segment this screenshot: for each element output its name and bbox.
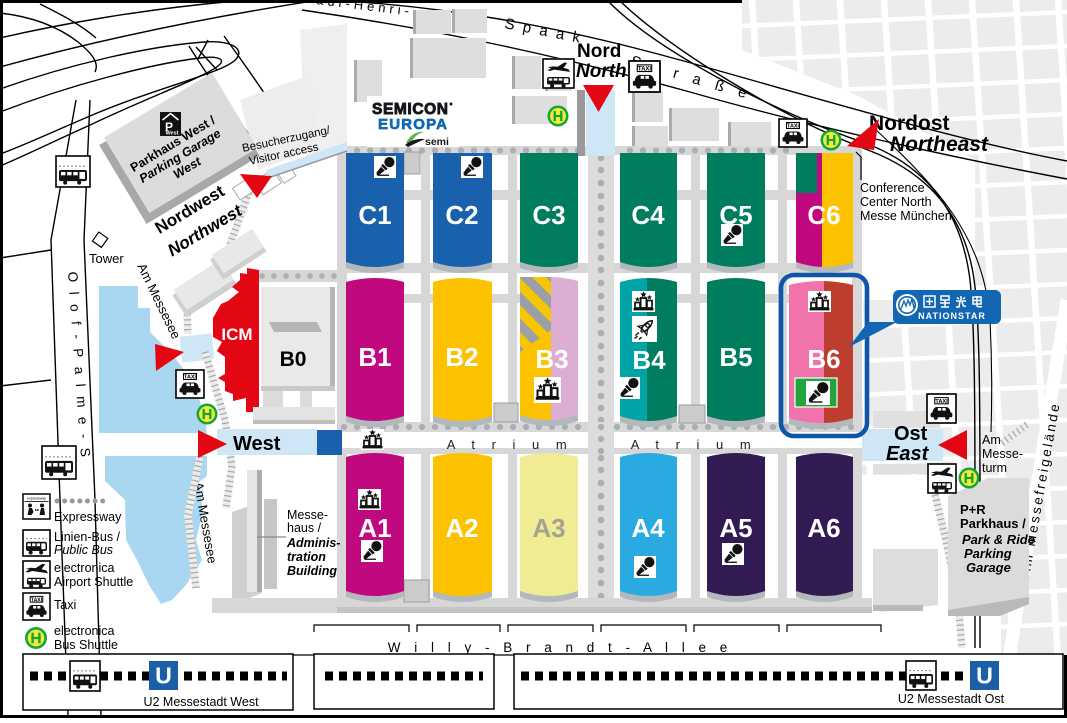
- svg-text:Linien-Bus /: Linien-Bus /: [54, 530, 121, 544]
- svg-text:A4: A4: [631, 513, 665, 543]
- svg-text:electronica: electronica: [54, 624, 114, 638]
- svg-text:A3: A3: [532, 513, 565, 543]
- svg-text:B1: B1: [358, 342, 391, 372]
- svg-text:B0: B0: [280, 348, 307, 371]
- svg-text:North: North: [576, 61, 627, 82]
- svg-text:TAXI: TAXI: [31, 597, 43, 603]
- svg-text:EUROPA: EUROPA: [378, 116, 447, 133]
- svg-text:NATIONSTAR: NATIONSTAR: [918, 311, 986, 321]
- svg-text:Center North: Center North: [860, 195, 932, 209]
- svg-text:C4: C4: [631, 200, 665, 230]
- svg-text:Messe-: Messe-: [287, 508, 328, 522]
- svg-text:TAXI: TAXI: [638, 67, 651, 73]
- svg-text:B5: B5: [719, 342, 752, 372]
- svg-text:Parking: Parking: [964, 546, 1012, 561]
- svg-text:Am: Am: [982, 433, 1001, 447]
- svg-text:B2: B2: [445, 342, 478, 372]
- svg-text:C2: C2: [445, 200, 478, 230]
- svg-text:U: U: [155, 663, 172, 689]
- svg-text:C3: C3: [532, 200, 565, 230]
- svg-text:Public Bus: Public Bus: [54, 543, 113, 557]
- svg-text:Parkhaus /: Parkhaus /: [960, 516, 1026, 531]
- svg-text:Messe München: Messe München: [860, 209, 952, 223]
- svg-text:U: U: [976, 663, 993, 689]
- svg-text:Northeast: Northeast: [890, 133, 989, 156]
- svg-text:TAXI: TAXI: [787, 124, 799, 130]
- svg-text:TAXI: TAXI: [935, 399, 948, 405]
- svg-text:Building: Building: [287, 564, 337, 578]
- svg-text:B3: B3: [535, 344, 568, 374]
- svg-text:Adminis-: Adminis-: [286, 536, 340, 550]
- svg-text:West: West: [233, 433, 281, 455]
- svg-text:Ost: Ost: [894, 423, 928, 445]
- svg-text:B4: B4: [632, 345, 666, 375]
- svg-text:C6: C6: [807, 200, 840, 230]
- svg-text:tration: tration: [287, 550, 326, 564]
- svg-text:Nordost: Nordost: [869, 112, 950, 135]
- svg-text:A2: A2: [445, 513, 478, 543]
- svg-text:W i l l y - B r a n d t - A l: W i l l y - B r a n d t - A l l e e: [388, 640, 733, 655]
- svg-text:Tower: Tower: [89, 251, 124, 266]
- svg-text:expressway: expressway: [27, 497, 46, 501]
- svg-text:TAXI: TAXI: [184, 375, 196, 381]
- svg-text:Messe-: Messe-: [982, 447, 1023, 461]
- svg-text:B6: B6: [807, 344, 840, 374]
- svg-text:turm: turm: [982, 461, 1007, 475]
- svg-text:haus /: haus /: [287, 521, 322, 535]
- svg-text:Expressway: Expressway: [54, 510, 122, 524]
- svg-text:East: East: [886, 443, 930, 465]
- svg-text:Conference: Conference: [860, 181, 925, 195]
- svg-text:A t r i u m: A t r i u m: [447, 437, 573, 452]
- svg-text:ICM: ICM: [221, 325, 252, 344]
- svg-text:A6: A6: [807, 513, 840, 543]
- svg-text:P+R: P+R: [960, 502, 986, 517]
- svg-text:Park & Ride: Park & Ride: [962, 532, 1035, 547]
- svg-text:U2 Messestadt Ost: U2 Messestadt Ost: [898, 692, 1005, 706]
- svg-text:C1: C1: [358, 200, 391, 230]
- svg-text:Taxi: Taxi: [54, 598, 76, 612]
- svg-text:A t r i u m: A t r i u m: [631, 437, 757, 452]
- svg-text:Nord: Nord: [577, 41, 621, 62]
- svg-text:U2 Messestadt West: U2 Messestadt West: [143, 695, 259, 709]
- svg-text:semi: semi: [425, 136, 449, 148]
- svg-text:A1: A1: [358, 513, 391, 543]
- svg-text:Garage: Garage: [966, 560, 1011, 575]
- svg-text:electronica: electronica: [54, 561, 114, 575]
- svg-text:Airport Shuttle: Airport Shuttle: [54, 575, 133, 589]
- svg-text:Bus Shuttle: Bus Shuttle: [54, 638, 118, 652]
- svg-text:A5: A5: [719, 513, 752, 543]
